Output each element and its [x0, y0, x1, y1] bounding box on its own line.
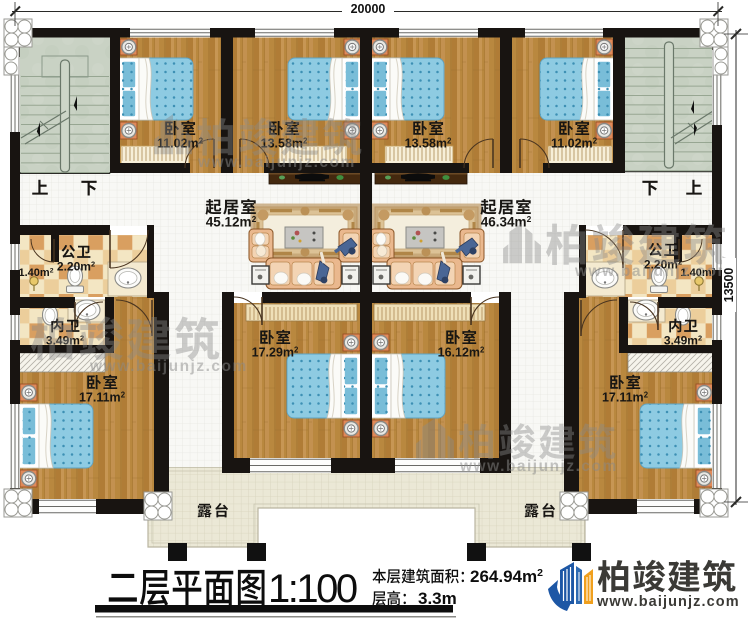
- svg-text:13.58m2: 13.58m2: [405, 137, 452, 151]
- svg-text:13500: 13500: [722, 268, 736, 303]
- svg-text:2.20m2: 2.20m2: [57, 260, 95, 274]
- svg-text:www.baijunjz.com: www.baijunjz.com: [89, 358, 248, 375]
- svg-text:www.baijunjz.com: www.baijunjz.com: [197, 154, 356, 171]
- svg-text:264.94m2: 264.94m2: [470, 567, 543, 586]
- svg-text:11.02m2: 11.02m2: [551, 137, 598, 151]
- svg-text:www.baijunjz.com: www.baijunjz.com: [596, 594, 740, 610]
- svg-text:16.12m2: 16.12m2: [438, 346, 485, 360]
- svg-text:www.baijunjz.com: www.baijunjz.com: [574, 263, 733, 280]
- svg-text:17.29m2: 17.29m2: [252, 346, 299, 360]
- svg-text:3.49m2: 3.49m2: [664, 334, 702, 348]
- svg-text:17.11m2: 17.11m2: [602, 391, 649, 405]
- svg-text:3.3m: 3.3m: [418, 589, 457, 608]
- svg-text:www.baijunjz.com: www.baijunjz.com: [459, 458, 618, 475]
- svg-text:45.12m2: 45.12m2: [206, 214, 257, 229]
- svg-text:20000: 20000: [351, 2, 386, 16]
- svg-text:46.34m2: 46.34m2: [481, 214, 532, 229]
- svg-text:1.40m2: 1.40m2: [19, 267, 54, 279]
- svg-text:17.11m2: 17.11m2: [79, 391, 126, 405]
- svg-text:1:100: 1:100: [268, 567, 357, 611]
